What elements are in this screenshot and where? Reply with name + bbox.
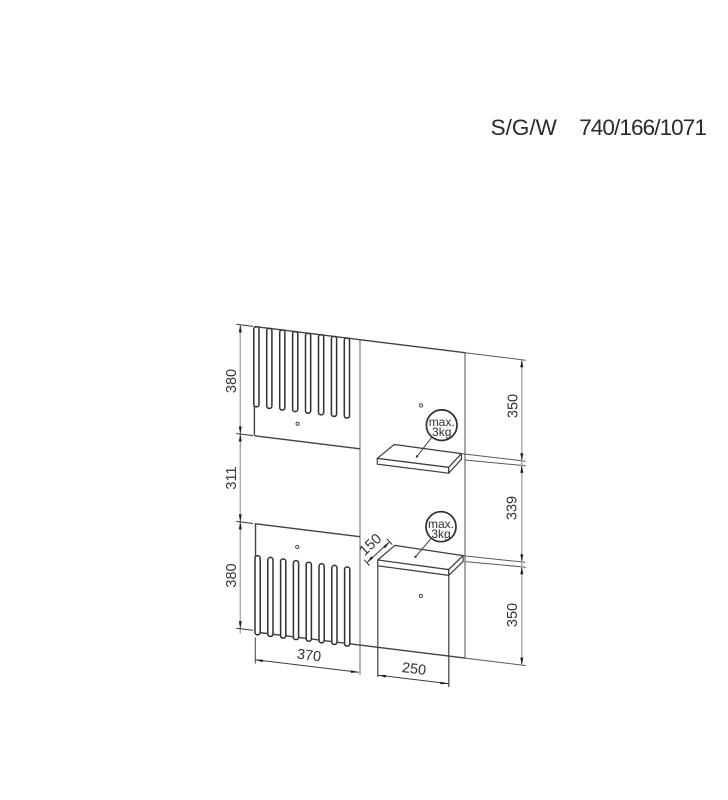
svg-text:250: 250 (401, 660, 427, 679)
svg-text:380: 380 (224, 563, 240, 587)
svg-text:S/G/W: S/G/W (491, 115, 558, 140)
svg-text:3kg: 3kg (432, 425, 451, 439)
svg-text:350: 350 (505, 603, 521, 627)
svg-text:350: 350 (505, 394, 521, 418)
svg-text:370: 370 (296, 647, 322, 666)
svg-text:3kg: 3kg (431, 527, 450, 541)
svg-text:339: 339 (505, 496, 521, 520)
svg-text:311: 311 (224, 466, 240, 489)
svg-text:380: 380 (224, 369, 240, 393)
svg-text:740/166/1071: 740/166/1071 (579, 115, 706, 140)
